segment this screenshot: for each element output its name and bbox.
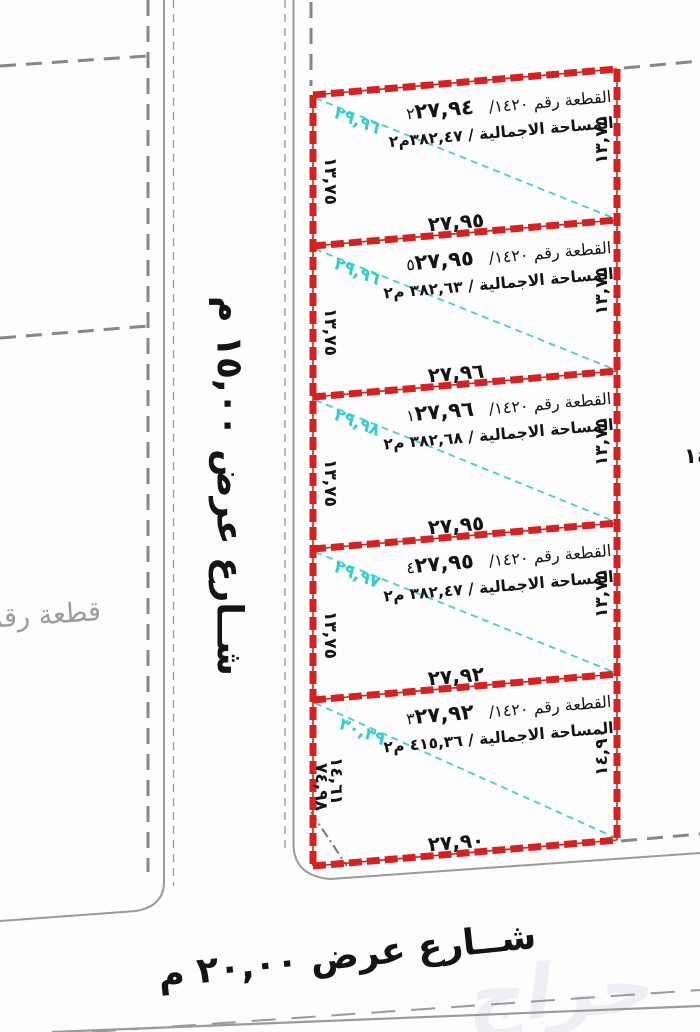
plot-5-left-dim-2: ٧٤,٩٨ bbox=[311, 763, 331, 811]
plot-3-top-dim: ٢٧,٩٦ bbox=[414, 397, 475, 426]
plot-1-left-dim: ١٣,٧٥ bbox=[320, 157, 340, 205]
plot-5-right-dim: ١٤,٩٠ bbox=[592, 728, 612, 776]
plot-3-left-dim: ١٣,٧٥ bbox=[320, 459, 340, 507]
plot-2-bottom-dim: ٢٧,٩٦ bbox=[427, 359, 485, 388]
plot-1-top-dim: ٢٧,٩٤ bbox=[414, 95, 475, 124]
plot-2-left-dim: ١٣,٧٥ bbox=[320, 308, 340, 356]
plot-2-top-dim: ٢٧,٩٥ bbox=[414, 246, 475, 275]
plot-1-bottom-dim: ٢٧,٩٥ bbox=[427, 208, 485, 237]
site-plan-canvas: حراج bbox=[0, 0, 700, 1032]
plot-2-right-dim: ١٣,٧٥ bbox=[592, 267, 612, 315]
plot-1-right-dim: ١٣,٧٥ bbox=[592, 116, 612, 164]
plot-4-top-dim: ٢٧,٩٥ bbox=[414, 549, 475, 578]
plot-3-bottom-dim: ٢٧,٩٥ bbox=[427, 511, 485, 540]
plot-4-bottom-dim: ٢٧,٩٢ bbox=[427, 662, 485, 691]
plot-3-right-dim: ١٣,٧٥ bbox=[592, 418, 612, 466]
plot-4-right-dim: ١٣,٧٥ bbox=[592, 570, 612, 618]
right-edge-partial-dim: ١٤ bbox=[684, 444, 700, 468]
plot-5-bottom-dim: ٢٧,٩٠ bbox=[427, 828, 485, 857]
plot-5-top-dim: ٢٧,٩٢ bbox=[414, 700, 475, 729]
plot-4-left-dim: ١٣,٧٥ bbox=[320, 611, 340, 659]
left-street-label: شــارع عرض ١٥,٠٠ م bbox=[209, 296, 250, 676]
